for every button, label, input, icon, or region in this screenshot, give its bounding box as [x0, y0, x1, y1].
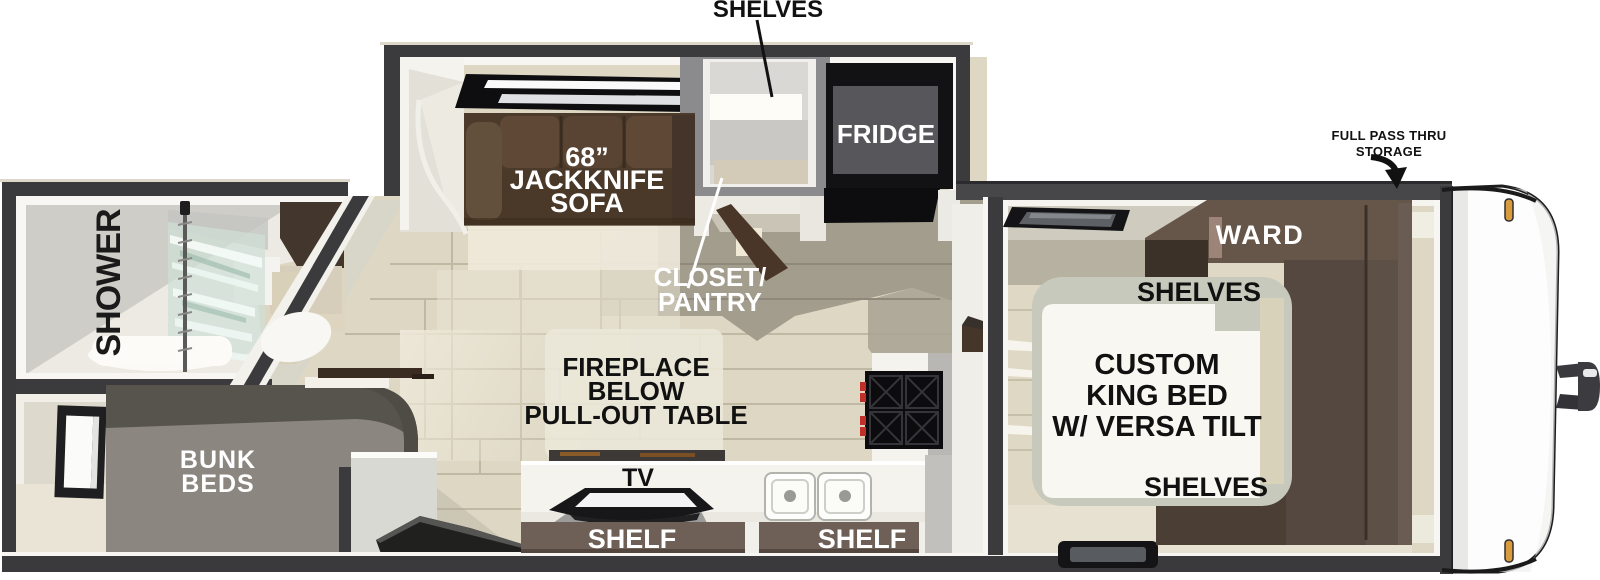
- svg-text:PANTRY: PANTRY: [658, 287, 762, 317]
- svg-text:W/ VERSA TILT: W/ VERSA TILT: [1052, 411, 1262, 443]
- svg-text:SHELVES: SHELVES: [1137, 277, 1261, 307]
- svg-text:SOFA: SOFA: [550, 188, 624, 218]
- svg-text:SHELVES: SHELVES: [1144, 472, 1268, 502]
- svg-text:PULL-OUT TABLE: PULL-OUT TABLE: [524, 400, 747, 430]
- svg-text:CUSTOM: CUSTOM: [1094, 349, 1219, 381]
- svg-text:KING BED: KING BED: [1086, 380, 1228, 412]
- svg-text:SHELVES: SHELVES: [713, 0, 823, 23]
- svg-text:FRIDGE: FRIDGE: [837, 119, 935, 149]
- svg-text:BEDS: BEDS: [181, 470, 254, 498]
- svg-text:WARD: WARD: [1216, 220, 1305, 250]
- svg-text:STORAGE: STORAGE: [1356, 144, 1422, 159]
- svg-text:TV: TV: [622, 464, 654, 492]
- svg-text:SHELF: SHELF: [818, 524, 907, 554]
- svg-text:SHOWER: SHOWER: [90, 209, 128, 356]
- svg-text:SHELF: SHELF: [588, 524, 677, 554]
- svg-text:FULL PASS THRU: FULL PASS THRU: [1332, 128, 1447, 143]
